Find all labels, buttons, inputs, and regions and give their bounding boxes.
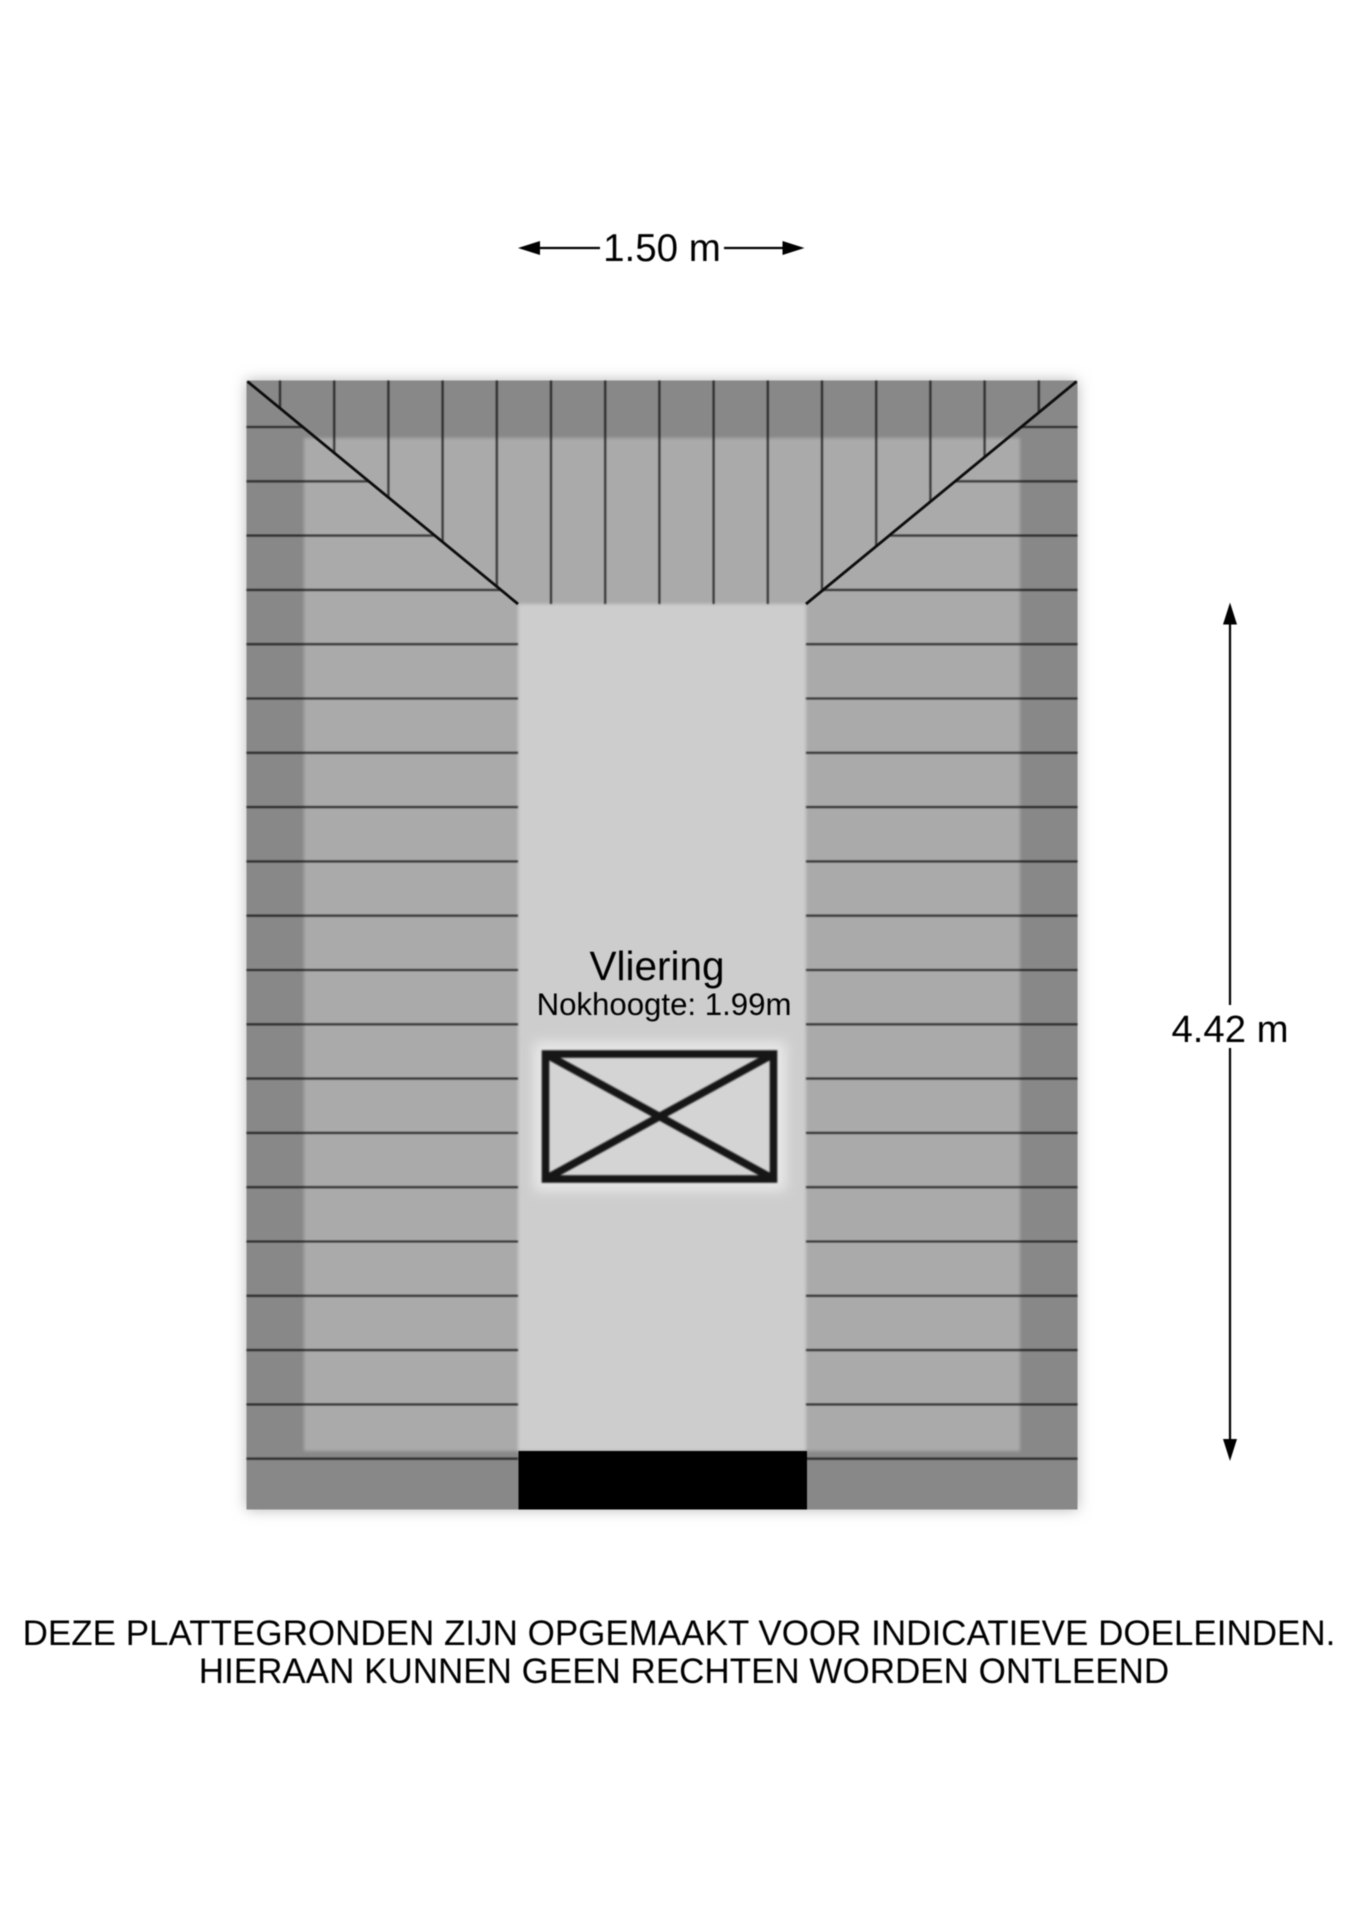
svg-text:4.42 m: 4.42 m	[1171, 1008, 1288, 1051]
svg-text:Nokhoogte: 1.99m: Nokhoogte: 1.99m	[537, 987, 792, 1022]
svg-text:1.50 m: 1.50 m	[603, 227, 721, 270]
svg-text:Vliering: Vliering	[589, 943, 724, 989]
svg-text:DEZE PLATTEGRONDEN ZIJN OPGEMA: DEZE PLATTEGRONDEN ZIJN OPGEMAAKT VOOR I…	[23, 1614, 1336, 1653]
svg-text:HIERAAN KUNNEN GEEN RECHTEN WO: HIERAAN KUNNEN GEEN RECHTEN WORDEN ONTLE…	[199, 1652, 1169, 1691]
